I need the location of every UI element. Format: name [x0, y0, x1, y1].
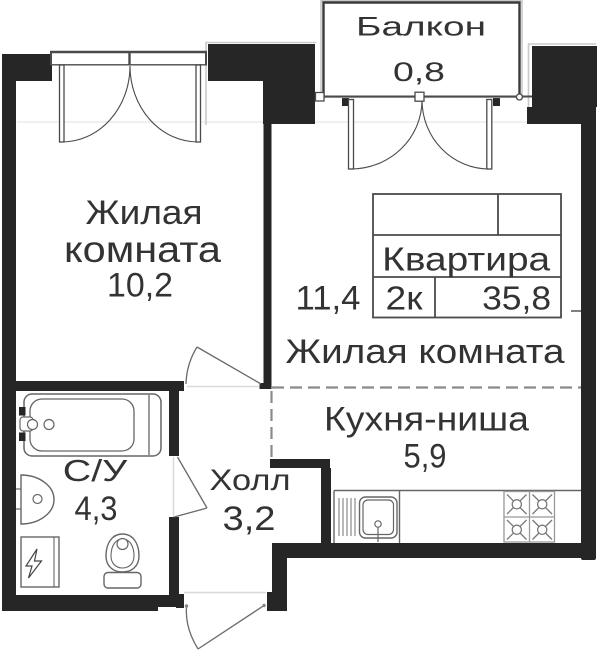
svg-text:Холл: Холл	[210, 464, 291, 497]
svg-text:С/У: С/У	[63, 453, 128, 488]
svg-text:комната: комната	[64, 229, 221, 270]
svg-text:3,2: 3,2	[223, 500, 276, 538]
svg-text:2к: 2к	[386, 280, 424, 317]
svg-text:10,2: 10,2	[107, 267, 173, 305]
svg-text:0,8: 0,8	[393, 57, 445, 87]
svg-text:35,8: 35,8	[482, 280, 551, 317]
svg-text:Балкон: Балкон	[356, 12, 486, 42]
svg-text:4,3: 4,3	[75, 490, 118, 528]
svg-text:Жилая комната: Жилая комната	[286, 333, 565, 371]
svg-text:Кухня-ниша: Кухня-ниша	[324, 401, 529, 439]
svg-text:Жилая: Жилая	[86, 194, 203, 232]
svg-text:11,4: 11,4	[296, 280, 361, 318]
svg-text:Квартира: Квартира	[382, 241, 551, 278]
svg-text:5,9: 5,9	[404, 438, 447, 476]
